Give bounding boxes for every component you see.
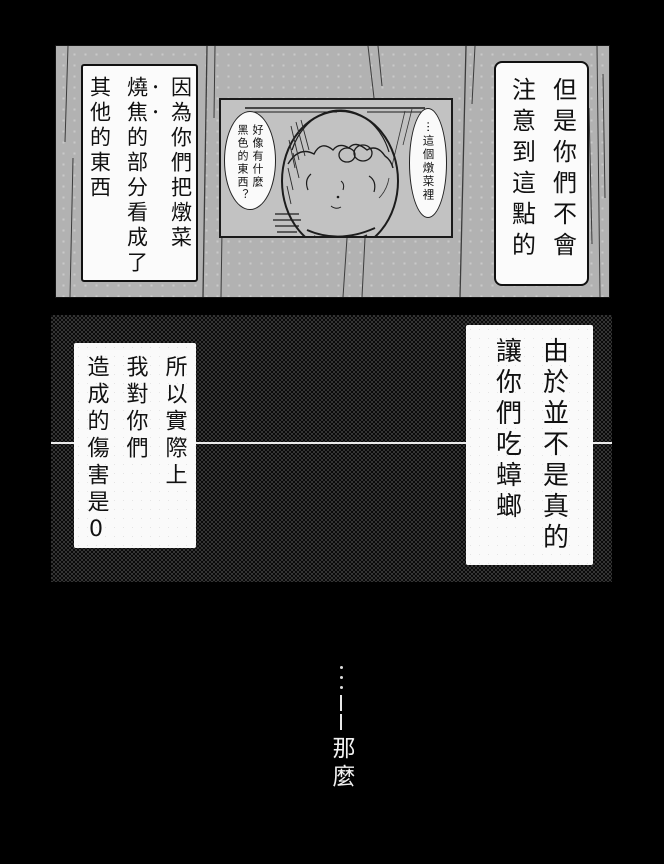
text-column: 因為你們把燉菜 — [162, 76, 199, 276]
manga-page: 因為你們把燉菜 燒焦的部分看成了 其他的東西 — [0, 0, 664, 864]
text-column: 黑色的東西？ — [235, 124, 250, 202]
text-column: 造成的傷害是0 — [77, 355, 116, 547]
caption-box-middle-right: 由於並不是真的 讓你們吃蟑螂 — [466, 325, 593, 565]
ellipsis-dot — [340, 666, 343, 669]
speech-box-top-left: 因為你們把燉菜 燒焦的部分看成了 其他的東西 — [81, 64, 198, 282]
text-column: 由於並不是真的 — [530, 337, 577, 554]
inset-flashback-panel: 好像有什麼 黑色的東西？ ⋯這個燉菜裡 — [219, 98, 453, 238]
ellipsis-dot — [340, 686, 343, 689]
text-column: 注意到這點的 — [501, 77, 542, 263]
speech-text-top-left: 因為你們把燉菜 燒焦的部分看成了 其他的東西 — [81, 76, 199, 276]
text-column: 燒焦的部分看成了 — [118, 76, 162, 276]
text-column: 所以實際上 — [155, 355, 194, 547]
caption-text-middle-left: 所以實際上 我對你們 造成的傷害是0 — [77, 355, 194, 547]
top-panel: 因為你們把燉菜 燒焦的部分看成了 其他的東西 — [55, 45, 610, 298]
text-column: 讓你們吃蟑螂 — [483, 337, 530, 554]
ellipsis-dot — [340, 676, 343, 679]
caption-box-middle-left: 所以實際上 我對你們 造成的傷害是0 — [74, 343, 196, 548]
text-column: 但是你們不會 — [542, 77, 583, 263]
speech-bubble-left: 好像有什麼 黑色的東西？ — [224, 111, 276, 210]
middle-panel: 所以實際上 我對你們 造成的傷害是0 由於並不是真的 讓你們吃蟑螂 — [51, 315, 612, 582]
text-column: 好像有什麼 — [250, 124, 265, 202]
speech-bubble-right: ⋯這個燉菜裡 — [409, 108, 447, 218]
emphasized-text: 燒焦 — [125, 76, 149, 126]
dash-line — [340, 714, 342, 730]
text-run: 的部分看成了 — [125, 126, 149, 276]
dash-line — [340, 695, 342, 711]
bottom-text: 那麼 — [324, 736, 358, 792]
text-column: 我對你們 — [116, 355, 155, 547]
speech-box-top-right: 但是你們不會 注意到這點的 — [494, 61, 589, 286]
bubble-text-right: ⋯這個燉菜裡 — [421, 109, 436, 202]
text-column: ⋯這個燉菜裡 — [421, 121, 436, 202]
text-column: 其他的東西 — [81, 76, 118, 276]
bubble-text-left: 好像有什麼 黑色的東西？ — [235, 112, 265, 202]
speech-text-top-right: 但是你們不會 注意到這點的 — [501, 77, 583, 263]
bottom-utterance: 那麼 — [325, 662, 357, 792]
caption-text-middle-right: 由於並不是真的 讓你們吃蟑螂 — [483, 337, 577, 554]
